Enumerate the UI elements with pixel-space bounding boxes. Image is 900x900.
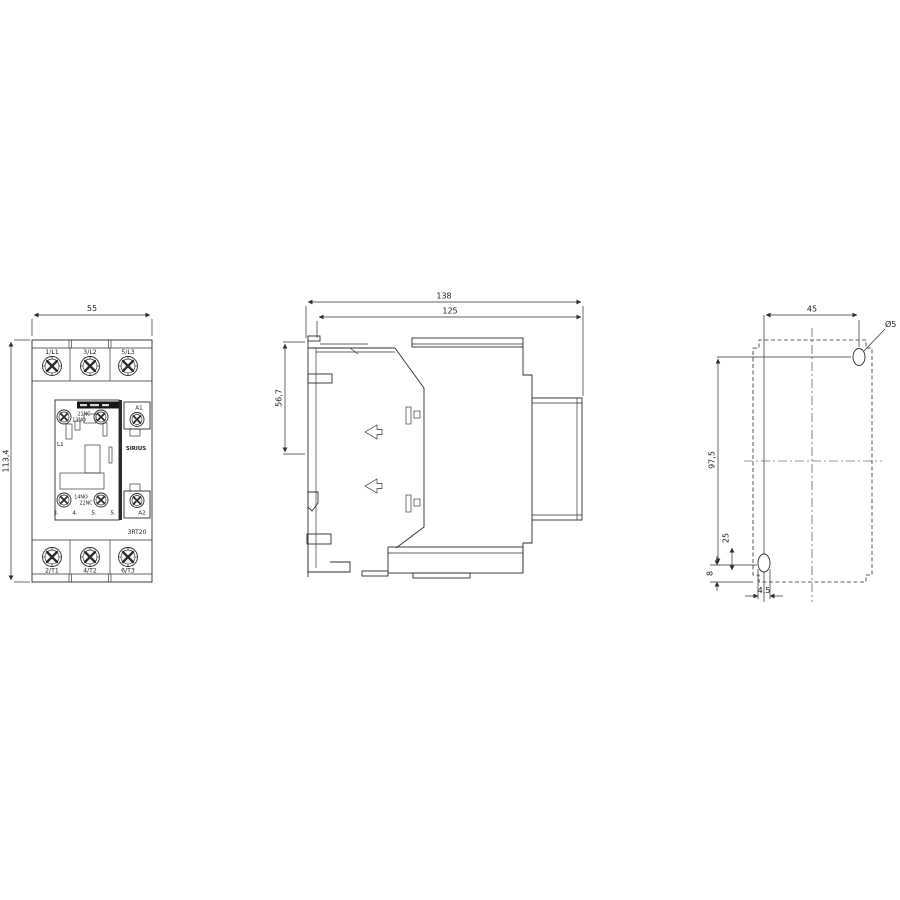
coil-marking-l1: L1 — [57, 442, 64, 448]
front-height-dimension: 113,4 — [2, 450, 11, 473]
screw-terminal-4t2 — [81, 548, 100, 567]
leader-line — [864, 329, 885, 351]
drawing-canvas: 55 113,4 1/L1 3/L2 5/L3 — [0, 0, 900, 900]
hole-diameter-label: Ø5 — [885, 319, 896, 329]
size-number-2: 4. — [72, 511, 78, 517]
terminal-label-5l3: 5/L3 — [121, 349, 134, 356]
aux-screw-bottom-left — [57, 493, 71, 507]
aux-screw-top-left — [57, 410, 71, 424]
size-number-4: 5. — [110, 511, 116, 517]
terminal-label-1l1: 1/L1 — [45, 349, 58, 356]
screw-terminal-5l3 — [119, 357, 138, 376]
side-view: 138 125 56,7 — [275, 292, 584, 579]
size-number-3: 5. — [91, 511, 97, 517]
contactor-front-outline — [32, 340, 152, 582]
aux-screw-bottom-right — [94, 493, 108, 507]
side-rail-offset-dimension: 56,7 — [275, 389, 284, 407]
front-width-dimension: 55 — [87, 304, 97, 313]
din-clip-spring — [307, 534, 331, 544]
slot-width-dimension: 4,5 — [758, 586, 771, 595]
module-separator-strip — [119, 400, 122, 520]
coil-screw-a1 — [130, 413, 144, 427]
coil-screw-a2 — [130, 494, 144, 508]
series-label: 3RT20 — [128, 529, 147, 536]
screw-terminal-1l1 — [43, 357, 62, 376]
aux-marking-22nc: 22NC — [79, 501, 93, 507]
front-view: 55 113,4 1/L1 3/L2 5/L3 — [2, 304, 153, 582]
terminal-label-3l2: 3/L2 — [83, 349, 96, 356]
terminal-label-6t3: 6/T3 — [121, 568, 135, 575]
fixing-hole-top-right — [853, 349, 865, 366]
screw-terminal-6t3 — [119, 548, 138, 567]
slot-length-dimension: 25 — [722, 533, 731, 543]
latch-tab — [308, 374, 332, 383]
brand-label: SIRIUS — [126, 446, 146, 452]
terminal-label-4t2: 4/T2 — [83, 568, 97, 575]
side-depth-total-dimension: 138 — [436, 292, 451, 301]
hole-spacing-h-dimension: 45 — [807, 305, 817, 314]
front-terminal-block — [532, 398, 582, 520]
coil-terminal-a2-block — [124, 491, 150, 518]
coil-terminal-a2-label: A2 — [138, 511, 145, 517]
coil-terminal-a1-label: A1 — [135, 406, 143, 412]
side-depth-front-dimension: 125 — [442, 307, 457, 316]
mechanism-detail — [60, 414, 112, 489]
fixing-hole-bottom-left — [758, 554, 770, 572]
size-number-1: 3. — [53, 511, 59, 517]
bottom-offset-dimension: 8 — [706, 571, 715, 576]
din-clip-hook — [308, 492, 318, 511]
screw-terminal-3l2 — [81, 357, 100, 376]
hole-spacing-v-dimension: 97,5 — [708, 451, 717, 469]
dimension-drawing: 55 113,4 1/L1 3/L2 5/L3 — [0, 0, 900, 900]
din-rail-mounting-plate — [307, 336, 395, 577]
housing-detail-symbols — [365, 407, 420, 512]
terminal-label-2t1: 2/T1 — [45, 568, 59, 575]
drill-plan: Ø5 45 97,5 25 8 4,5 — [706, 305, 897, 603]
screw-terminal-2t1 — [43, 548, 62, 567]
aux-marking-14no: 14NO — [74, 495, 88, 501]
contactor-side-profile — [316, 338, 532, 578]
